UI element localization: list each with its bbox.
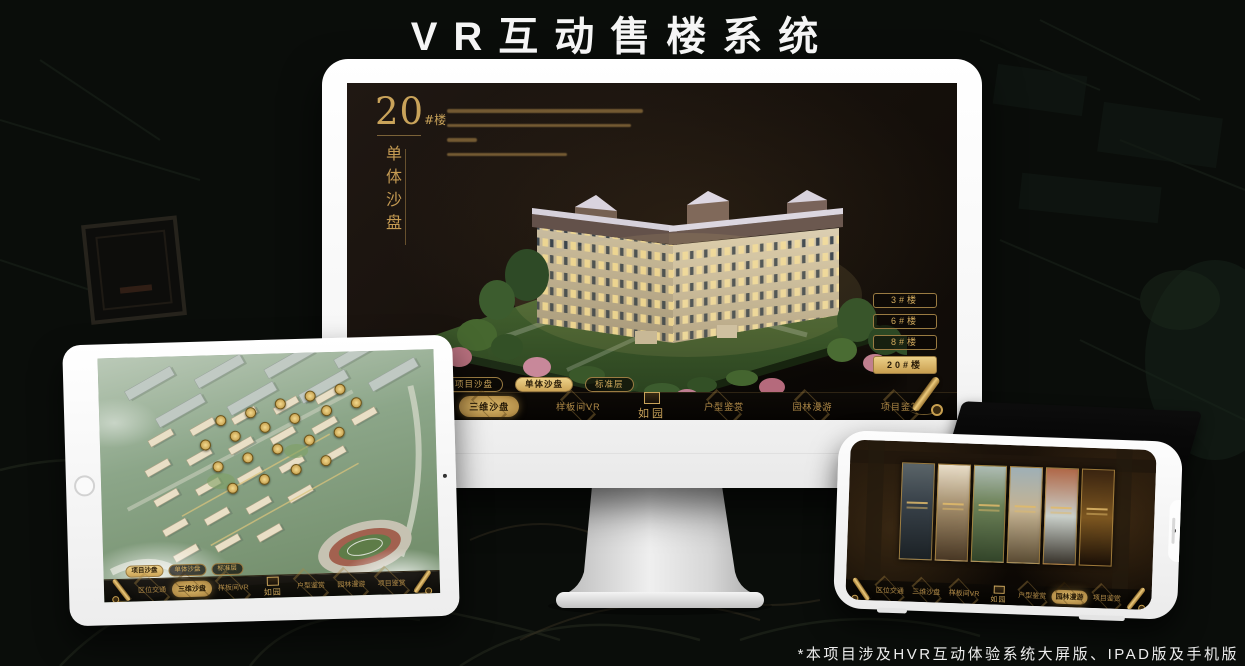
nav-floorplan-gallery[interactable]: 户型鉴赏 — [291, 577, 331, 594]
intro-text-line — [447, 124, 631, 128]
project-logo[interactable]: 如园 — [254, 576, 291, 598]
gallery-card-wine-cabinet[interactable] — [1079, 469, 1115, 567]
nav-3d-sandbox[interactable]: 三维沙盘 — [172, 580, 212, 597]
project-logo-text: 如园 — [624, 405, 680, 420]
phone-device: 区位交通 三维沙盘 样板间VR 如园 户型鉴赏 园林漫游 项目鉴赏 — [833, 430, 1183, 620]
gallery-card-residential-tower[interactable] — [1007, 466, 1043, 564]
nav-model-room-vr[interactable]: 样板间VR — [944, 586, 983, 601]
gallery-card-garden-gate[interactable] — [971, 465, 1007, 563]
tablet-screen[interactable]: 项目沙盘 单体沙盘 标准层 区位交通 三维沙盘 样板间VR 如园 户型鉴赏 园林… — [98, 349, 441, 602]
building-headline: 20#楼 — [375, 93, 446, 130]
project-logo[interactable]: 如园 — [624, 392, 680, 420]
seal-icon — [266, 576, 278, 585]
floor-button-20[interactable]: 20#楼 — [873, 356, 937, 374]
floor-button-6[interactable]: 6#楼 — [873, 314, 937, 329]
nav-floorplan-gallery[interactable]: 户型鉴赏 — [694, 396, 754, 417]
tab-standard-floor[interactable]: 标准层 — [585, 377, 634, 392]
nav-3d-sandbox[interactable]: 三维沙盘 — [908, 585, 944, 600]
tab-single-building-sandbox[interactable]: 单体沙盘 — [515, 377, 573, 392]
scroll-menu-icon[interactable] — [110, 576, 133, 603]
floor-button-8[interactable]: 8#楼 — [873, 335, 937, 350]
building-number-suffix: #楼 — [424, 113, 446, 127]
nav-project-gallery[interactable]: 项目鉴赏 — [371, 575, 411, 592]
side-button — [877, 607, 907, 613]
gallery-card-courtyard-night[interactable] — [899, 462, 935, 560]
floor-button-3[interactable]: 3#楼 — [873, 293, 937, 308]
nav-floorplan-gallery[interactable]: 户型鉴赏 — [1014, 588, 1050, 603]
nav-garden-roam[interactable]: 园林漫游 — [782, 396, 842, 417]
tablet-device: 项目沙盘 单体沙盘 标准层 区位交通 三维沙盘 样板间VR 如园 户型鉴赏 园林… — [62, 335, 460, 627]
project-logo[interactable]: 如园 — [983, 585, 1014, 605]
nav-location-traffic[interactable]: 区位交通 — [132, 582, 172, 599]
gallery-card-autumn-courtyard[interactable] — [1043, 467, 1079, 565]
building-3d-model[interactable] — [387, 135, 907, 403]
phone-navbar: 区位交通 三维沙盘 样板间VR 如园 户型鉴赏 园林漫游 项目鉴赏 — [845, 579, 1152, 610]
scroll-menu-icon[interactable] — [909, 373, 943, 419]
page-title: VR互动售楼系统 — [0, 4, 1245, 62]
scroll-menu-icon[interactable] — [1125, 584, 1148, 610]
seal-icon — [644, 392, 660, 404]
nav-model-room-vr[interactable]: 样板间VR — [212, 579, 255, 596]
building-number: 20 — [375, 90, 424, 133]
phone-screen[interactable]: 区位交通 三维沙盘 样板间VR 如园 户型鉴赏 园林漫游 项目鉴赏 — [845, 439, 1156, 610]
nav-garden-roam[interactable]: 园林漫游 — [331, 576, 371, 593]
nav-3d-sandbox[interactable]: 三维沙盘 — [459, 396, 519, 417]
nav-garden-roam[interactable]: 园林漫游 — [1051, 590, 1087, 605]
seal-icon — [993, 585, 1004, 593]
nav-project-gallery[interactable]: 项目鉴赏 — [1089, 591, 1125, 606]
floor-selector: 3#楼 6#楼 8#楼 20#楼 — [873, 293, 937, 374]
nav-location-traffic[interactable]: 区位交通 — [872, 583, 908, 598]
footnote: *本项目涉及HVR互动体验系统大屏版、IPAD版及手机版 — [798, 643, 1239, 664]
tab-project-sandbox[interactable]: 项目沙盘 — [445, 377, 503, 392]
gallery-card-bright-interior[interactable] — [935, 464, 971, 562]
home-button[interactable] — [74, 475, 96, 497]
scroll-menu-icon[interactable] — [411, 567, 434, 598]
nav-group-right: 户型鉴赏 园林漫游 项目鉴赏 — [680, 396, 945, 417]
scroll-menu-icon[interactable] — [849, 575, 872, 606]
monitor-stand — [540, 484, 780, 616]
nav-model-room-vr[interactable]: 样板间VR — [546, 396, 611, 417]
camera-icon — [443, 473, 447, 477]
gallery-cards — [899, 462, 1115, 566]
view-tabs: 项目沙盘 单体沙盘 标准层 — [445, 377, 634, 392]
intro-text-line — [447, 109, 643, 113]
